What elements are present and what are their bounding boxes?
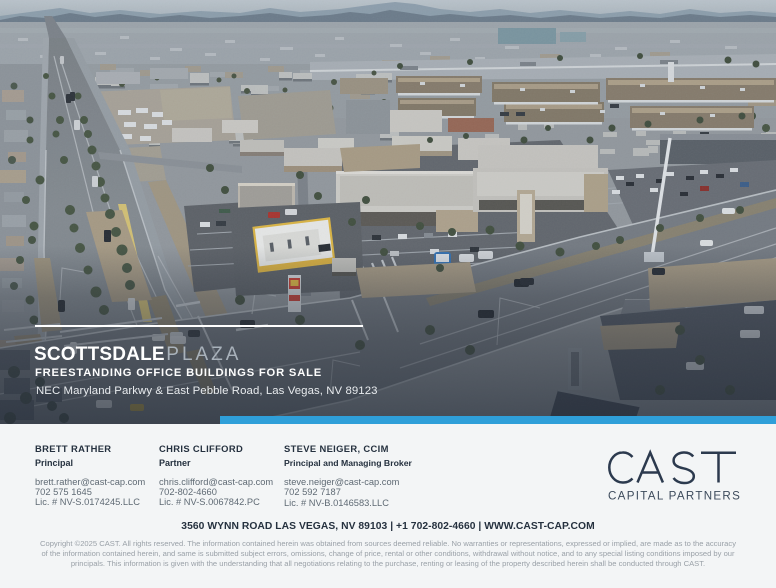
svg-text:CAPITAL PARTNERS: CAPITAL PARTNERS bbox=[608, 490, 741, 503]
